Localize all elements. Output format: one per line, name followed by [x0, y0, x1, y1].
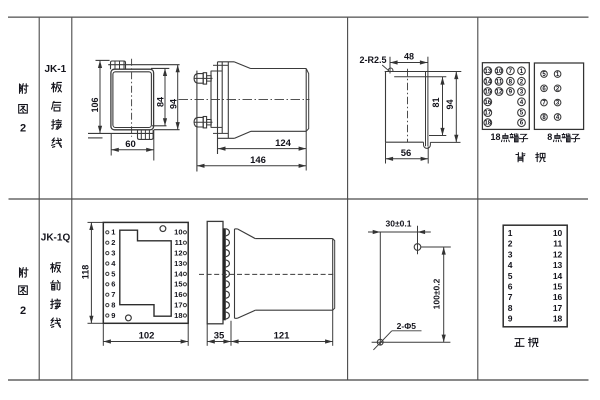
svg-text:13: 13 [553, 260, 563, 270]
svg-text:5: 5 [520, 110, 524, 117]
svg-text:2: 2 [111, 238, 115, 247]
svg-text:14: 14 [553, 271, 563, 281]
svg-text:JK-1Q: JK-1Q [41, 233, 71, 244]
svg-text:7: 7 [508, 292, 513, 302]
svg-text:35: 35 [214, 331, 225, 342]
svg-text:10: 10 [496, 68, 503, 75]
svg-text:4: 4 [508, 260, 513, 270]
svg-text:11: 11 [553, 239, 562, 249]
svg-text:60: 60 [125, 139, 136, 150]
svg-text:6: 6 [508, 281, 513, 291]
svg-text:16: 16 [553, 292, 563, 302]
svg-text:5: 5 [111, 269, 115, 278]
svg-text:8: 8 [547, 132, 552, 142]
svg-text:9: 9 [111, 311, 115, 320]
svg-text:121: 121 [274, 331, 291, 342]
svg-text:11: 11 [175, 238, 183, 247]
svg-text:48: 48 [404, 52, 414, 62]
svg-text:9: 9 [508, 313, 513, 323]
svg-text:8: 8 [508, 303, 513, 313]
svg-text:10: 10 [174, 228, 182, 237]
svg-text:146: 146 [250, 155, 266, 166]
svg-text:10: 10 [553, 228, 563, 238]
svg-text:6: 6 [111, 280, 115, 289]
svg-text:3: 3 [508, 249, 513, 259]
svg-text:8: 8 [509, 78, 513, 85]
svg-text:17: 17 [174, 300, 182, 309]
svg-text:2: 2 [20, 123, 26, 135]
svg-text:17: 17 [553, 303, 563, 313]
svg-text:30±0.1: 30±0.1 [386, 218, 412, 228]
svg-text:124: 124 [275, 138, 292, 149]
svg-text:2-Φ5: 2-Φ5 [397, 321, 417, 331]
svg-text:17: 17 [484, 110, 491, 117]
svg-text:3: 3 [111, 248, 115, 257]
svg-text:2: 2 [520, 78, 524, 85]
svg-text:106: 106 [90, 97, 100, 112]
svg-text:18: 18 [174, 311, 182, 320]
svg-text:3: 3 [520, 89, 524, 96]
svg-text:6: 6 [520, 120, 524, 127]
svg-text:7: 7 [509, 68, 513, 75]
svg-text:16: 16 [174, 290, 182, 299]
svg-text:84: 84 [156, 97, 166, 107]
svg-text:1: 1 [520, 68, 524, 75]
svg-text:2: 2 [20, 305, 26, 317]
svg-text:100±0.2: 100±0.2 [431, 278, 441, 309]
svg-text:JK-1: JK-1 [44, 64, 66, 75]
svg-text:5: 5 [508, 271, 513, 281]
svg-text:15: 15 [553, 281, 563, 291]
svg-text:7: 7 [111, 290, 115, 299]
svg-text:94: 94 [168, 99, 178, 109]
svg-text:18: 18 [484, 120, 491, 127]
svg-text:14: 14 [484, 78, 491, 85]
svg-text:118: 118 [81, 265, 91, 280]
svg-text:81: 81 [431, 97, 441, 107]
svg-text:11: 11 [496, 78, 503, 85]
svg-text:102: 102 [139, 331, 155, 342]
svg-text:1: 1 [111, 228, 115, 237]
svg-text:1: 1 [508, 228, 513, 238]
svg-text:4: 4 [111, 259, 116, 268]
svg-text:4: 4 [520, 99, 524, 106]
svg-text:16: 16 [484, 99, 491, 106]
svg-text:2-R2.5: 2-R2.5 [359, 55, 386, 65]
svg-text:18: 18 [490, 132, 500, 142]
svg-text:15: 15 [174, 280, 182, 289]
svg-text:18: 18 [553, 313, 563, 323]
svg-text:56: 56 [401, 148, 412, 159]
svg-text:2: 2 [508, 239, 513, 249]
svg-text:8: 8 [111, 300, 115, 309]
svg-text:94: 94 [445, 99, 455, 109]
svg-text:13: 13 [174, 259, 182, 268]
svg-text:14: 14 [174, 269, 183, 278]
svg-text:9: 9 [509, 89, 513, 96]
svg-text:15: 15 [484, 89, 491, 96]
svg-text:13: 13 [484, 68, 491, 75]
svg-text:12: 12 [496, 89, 503, 96]
svg-text:12: 12 [174, 248, 182, 257]
svg-text:12: 12 [553, 249, 563, 259]
